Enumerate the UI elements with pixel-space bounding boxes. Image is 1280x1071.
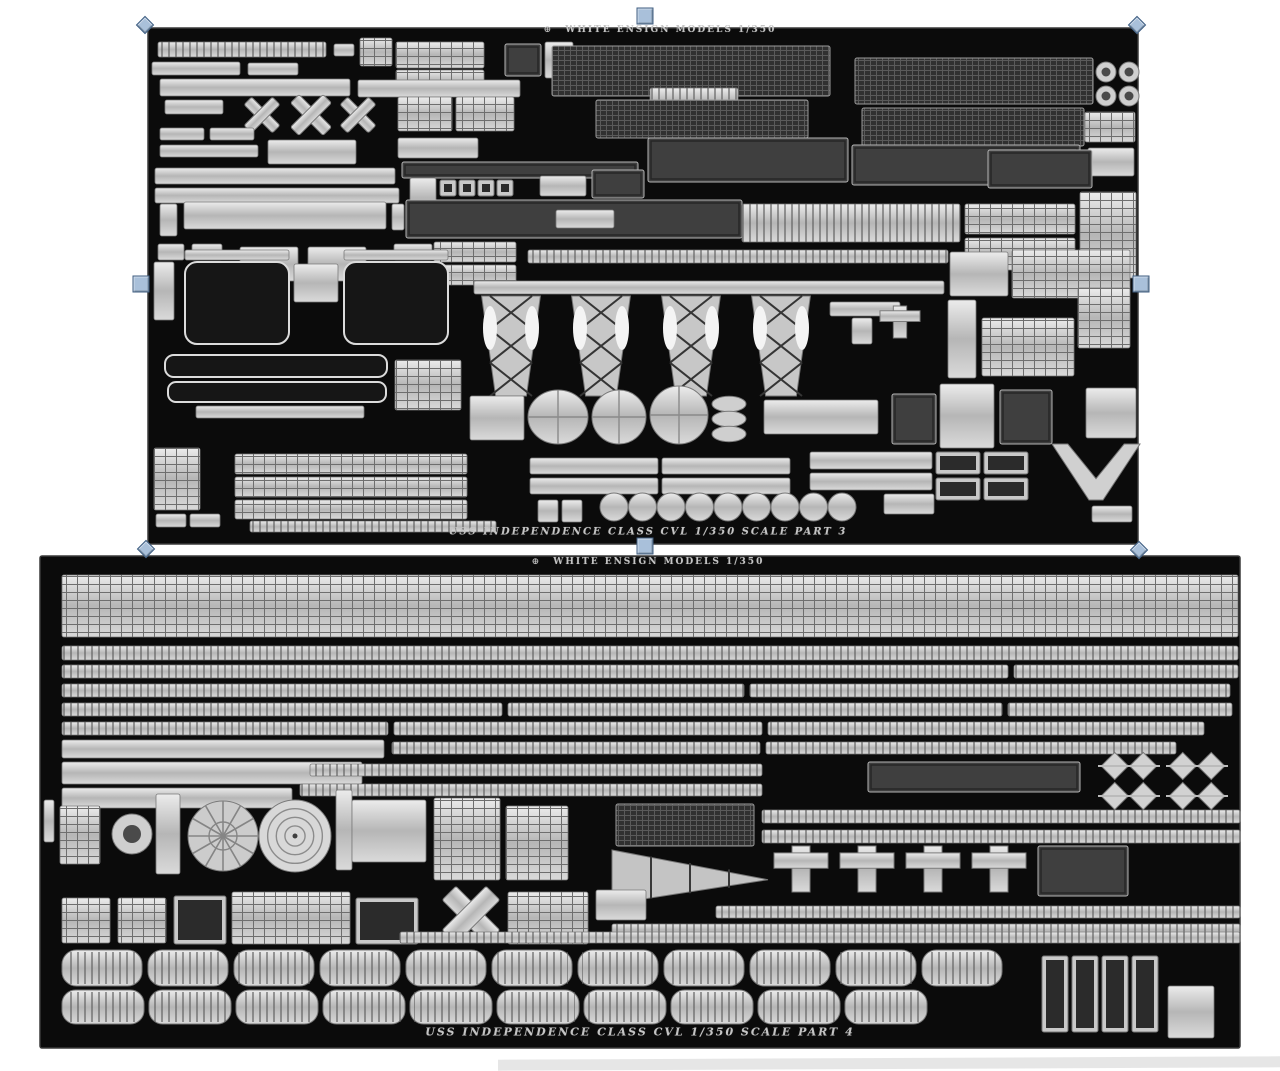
fret-part: [742, 204, 960, 242]
sheet-part4-top-label: ⊕WHITE ENSIGN MODELS 1/350: [532, 557, 765, 567]
fret-part: [360, 38, 392, 66]
sheet-part4-bottom-label: USS INDEPENDENCE CLASS CVL 1/350 SCALE P…: [425, 1026, 854, 1039]
fret-part: [398, 97, 452, 131]
fret-part: [768, 722, 1204, 735]
fret-part: [884, 494, 934, 514]
fret-part: [648, 138, 848, 182]
fret-part: [174, 896, 226, 944]
fret-part: [184, 202, 386, 229]
fret-part: [248, 63, 298, 75]
fret-part: [352, 800, 426, 862]
fret-part: [1168, 986, 1214, 1038]
fret-part: [596, 890, 646, 920]
fret-part: [112, 814, 152, 854]
fret-part: [210, 128, 254, 140]
fret-part: [492, 950, 572, 986]
fret-part: [344, 250, 448, 260]
fret-part: [392, 204, 404, 230]
fret-part: [154, 262, 174, 320]
fret-part: [185, 262, 289, 344]
fret-part: [530, 458, 658, 474]
fret-part: [1008, 703, 1232, 716]
fret-part: [268, 140, 356, 164]
fret-part: [400, 932, 1240, 943]
fret-part: [60, 806, 100, 864]
fret-part: [392, 742, 760, 754]
fret-part: [165, 100, 223, 114]
fret-part: [1092, 506, 1132, 522]
fret-part: [160, 145, 258, 157]
fret-part: [965, 204, 1075, 234]
fret-part: [62, 722, 388, 735]
fret-part: [855, 58, 1093, 104]
fret-part: [396, 42, 484, 68]
fret-part: [156, 794, 180, 874]
fret-part: [232, 892, 350, 944]
fret-part: [578, 950, 658, 986]
fret-part: [158, 42, 326, 57]
fret-part: [334, 44, 354, 56]
fret-part: [508, 703, 1002, 716]
fret-part: [158, 244, 184, 260]
fret-part: [44, 800, 54, 842]
selection-handle-bottom-center[interactable]: [637, 538, 654, 555]
fret-part: [868, 762, 1080, 792]
fret-part: [154, 448, 200, 510]
fret-part: [118, 898, 166, 943]
fret-part: [984, 452, 1028, 474]
fret-part: [62, 703, 502, 716]
sheet-part3-bottom-label: USS INDEPENDENCE CLASS CVL 1/350 SCALE P…: [449, 527, 848, 538]
fret-part: [470, 396, 524, 440]
fret-part: [410, 990, 492, 1024]
fret-part: [650, 386, 708, 444]
fret-part: [188, 801, 258, 871]
fret-part: [922, 950, 1002, 986]
fret-part: [750, 684, 1230, 697]
fret-part: [505, 44, 541, 76]
fret-part: [892, 394, 936, 444]
fret-part: [294, 264, 338, 302]
fret-part: [235, 500, 467, 519]
fret-part: [344, 262, 448, 344]
fret-part: [562, 500, 582, 522]
fret-part: [234, 950, 314, 986]
wem-logo-icon: ⊕: [532, 557, 542, 567]
fret-part: [1119, 62, 1139, 82]
sheet-part3-top-label-text: WHITE ENSIGN MODELS 1/350: [565, 25, 776, 35]
fret-part: [235, 477, 467, 497]
fret-part: [160, 128, 204, 140]
fret-part: [62, 740, 384, 758]
fret-part: [1086, 388, 1136, 438]
fret-part: [358, 80, 520, 97]
fret-part: [398, 138, 478, 158]
fret-part: [592, 390, 646, 444]
fret-part: [936, 478, 980, 500]
fret-part: [156, 514, 186, 527]
fret-part: [62, 646, 1238, 660]
fret-part: [323, 990, 405, 1024]
fret-part: [950, 252, 1008, 296]
fret-part: [528, 390, 588, 444]
sheet-part4-top-label-text: WHITE ENSIGN MODELS 1/350: [553, 557, 764, 567]
fret-part: [506, 806, 568, 880]
wem-logo-icon: ⊕: [544, 25, 554, 35]
fret-part: [940, 384, 994, 448]
fret-part: [936, 452, 980, 474]
fret-part: [984, 478, 1028, 500]
fret-part: [1119, 86, 1139, 106]
fret-part: [62, 684, 744, 697]
fret-part: [1014, 665, 1238, 678]
fret-part: [148, 950, 228, 986]
fret-part: [155, 168, 395, 184]
fret-part: [1038, 846, 1128, 896]
fret-part: [394, 722, 762, 735]
fret-part: [1132, 956, 1158, 1032]
fret-part: [600, 493, 856, 521]
fret-part: [616, 804, 754, 846]
fret-part: [62, 990, 144, 1024]
fret-part: [762, 830, 1240, 843]
fret-part: [1102, 956, 1128, 1032]
fret-part: [236, 990, 318, 1024]
fret-part: [406, 950, 486, 986]
fret-part: [259, 800, 331, 872]
fret-part: [395, 360, 461, 410]
fret-part: [155, 188, 399, 203]
fret-part: [196, 406, 364, 418]
fret-part: [1078, 288, 1130, 348]
fret-part: [440, 180, 456, 196]
fret-part: [662, 458, 790, 474]
fret-part: [538, 500, 558, 522]
fret-part: [762, 810, 1240, 823]
fret-part: [592, 170, 644, 198]
fret-part: [62, 950, 142, 986]
fret-part: [716, 906, 1240, 918]
fret-part: [478, 180, 494, 196]
fret-part: [750, 950, 830, 986]
editor-canvas[interactable]: ⊕WHITE ENSIGN MODELS 1/350 USS INDEPENDE…: [0, 0, 1280, 1069]
fret-part: [528, 250, 948, 263]
fret-part: [62, 665, 1008, 678]
fret-part: [434, 798, 500, 880]
fret-part: [764, 400, 878, 434]
fret-part: [712, 396, 746, 441]
fret-part: [540, 176, 586, 196]
fret-part: [336, 790, 352, 870]
fret-part: [862, 108, 1084, 146]
fret-part: [149, 990, 231, 1024]
fret-part: [190, 514, 220, 527]
fret-part: [62, 575, 1238, 637]
fret-part: [596, 100, 808, 138]
fret-part: [1042, 956, 1068, 1032]
fret-part: [810, 452, 932, 469]
fret-part: [320, 950, 400, 986]
fret-part: [185, 250, 289, 260]
fret-part: [497, 180, 513, 196]
fret-part: [662, 478, 790, 494]
fret-part: [584, 990, 666, 1024]
fret-part: [1072, 956, 1098, 1032]
sheet-part3-top-label: ⊕WHITE ENSIGN MODELS 1/350: [544, 25, 777, 35]
fret-part: [1096, 86, 1116, 106]
fret-part: [1088, 148, 1134, 176]
fret-part: [456, 97, 514, 131]
selection-handle-top-center[interactable]: [637, 8, 654, 25]
fret-part: [152, 62, 240, 75]
selection-handle-middle-right[interactable]: [1133, 276, 1150, 293]
fret-part: [556, 210, 614, 228]
fret-part: [1000, 390, 1052, 444]
fret-part: [235, 454, 467, 474]
fret-part: [165, 355, 387, 377]
fret-part: [497, 990, 579, 1024]
fret-part: [300, 784, 762, 796]
fret-part: [1096, 62, 1116, 82]
fret-part: [982, 318, 1074, 376]
fret-part: [1085, 112, 1135, 142]
fret-part: [664, 950, 744, 986]
fret-part: [530, 478, 658, 494]
fret-part: [168, 382, 386, 402]
fret-part: [160, 79, 350, 96]
fret-part: [758, 990, 840, 1024]
fret-part: [836, 950, 916, 986]
fret-part: [310, 764, 762, 776]
fret-part: [459, 180, 475, 196]
fret-part: [845, 990, 927, 1024]
fret-part: [671, 990, 753, 1024]
fret-part: [160, 204, 177, 236]
fret-part: [810, 473, 932, 490]
fret-part: [948, 300, 976, 378]
selection-handle-middle-left[interactable]: [133, 276, 150, 293]
fret-part: [852, 318, 872, 344]
fret-part: [62, 898, 110, 943]
fret-part: [474, 281, 944, 294]
fret-part: [988, 150, 1092, 188]
